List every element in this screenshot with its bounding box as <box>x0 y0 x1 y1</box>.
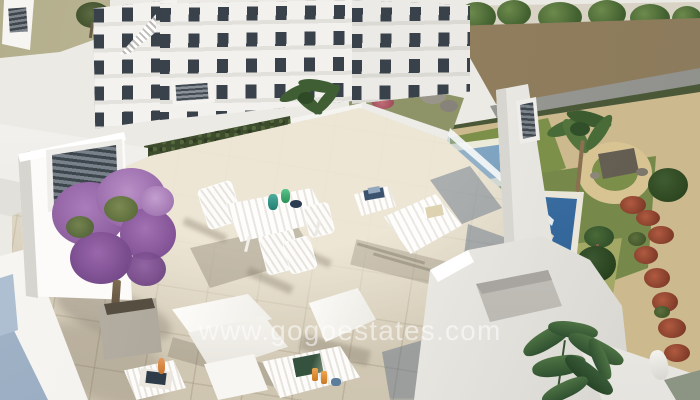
chimney-louver-grille <box>8 7 28 32</box>
rock <box>440 100 458 112</box>
street-tree <box>497 0 531 26</box>
blue-cup <box>331 378 341 386</box>
bougainvillea-canopy <box>126 252 166 286</box>
palm-crown <box>570 122 590 136</box>
bowl <box>290 200 302 208</box>
apartment-block <box>352 0 470 104</box>
red-shrub <box>634 246 658 264</box>
watermark: www.gogoestates.com <box>0 315 700 347</box>
orange-drink <box>321 371 327 384</box>
teal-vase <box>268 194 278 210</box>
planter-palm-crown <box>298 92 314 104</box>
rock <box>590 172 600 179</box>
vent-louver-grille <box>175 83 208 101</box>
green-shrub <box>628 232 646 246</box>
orange-bottle <box>158 358 165 374</box>
green-vase <box>281 189 290 203</box>
bougainvillea-canopy <box>70 232 132 284</box>
garden-tree <box>648 168 688 202</box>
red-shrub <box>644 268 670 288</box>
bougainvillea-leaves <box>104 196 138 222</box>
rock <box>636 168 648 176</box>
red-shrub <box>648 226 674 244</box>
bougainvillea-leaves <box>66 216 94 238</box>
bougainvillea-canopy <box>140 186 174 216</box>
orange-drink <box>312 368 318 381</box>
red-shrub <box>636 210 660 226</box>
small-palm <box>584 226 614 248</box>
rooftop-terrace-render: www.gogoestates.com <box>0 0 700 400</box>
